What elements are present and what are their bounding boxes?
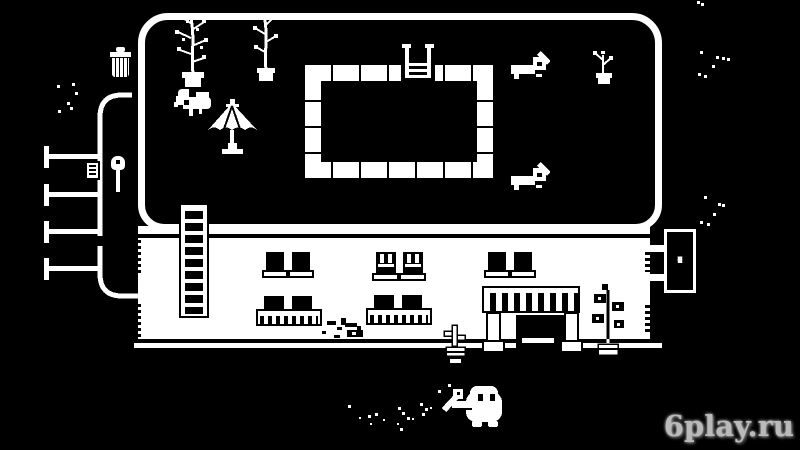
ladder-rungs (185, 207, 203, 314)
potted-sapling (588, 282, 632, 358)
window-flower-box (366, 308, 432, 325)
dust-particle (368, 415, 371, 418)
window-flower-box (256, 309, 322, 326)
sign-bracket (646, 245, 666, 252)
noise-speck (704, 196, 707, 199)
potted-cactus (438, 322, 470, 366)
door-step (522, 338, 554, 343)
dust-particle (425, 408, 428, 411)
noise-speck (712, 65, 715, 68)
dust-particle (370, 423, 372, 425)
parking-space-line (44, 221, 102, 243)
window-sill (288, 270, 314, 278)
wall-edge-texture (645, 252, 650, 272)
wall-edge-texture (645, 305, 650, 335)
potted-plant-tall (246, 14, 286, 82)
roof-access-ladder (179, 203, 209, 318)
window-plain (402, 295, 422, 308)
pillar-base (482, 340, 505, 353)
pool-tiles (305, 65, 493, 81)
noise-speck (75, 92, 78, 95)
swimming-pool (305, 65, 493, 178)
dust-particle (383, 419, 385, 421)
watermark: 6play.ru (664, 409, 794, 443)
noise-speck (700, 221, 703, 224)
parking-space-line (44, 184, 102, 206)
window-shuttered (376, 252, 396, 274)
patio-umbrella (205, 99, 261, 157)
noise-speck (713, 213, 716, 216)
noise-speck (718, 203, 721, 206)
potted-plant-large (166, 10, 218, 90)
noise-speck (697, 1, 700, 4)
window-shuttered (403, 252, 423, 274)
hotel-sign-letter: L (677, 256, 682, 267)
window-plain (488, 252, 506, 271)
window-plain (292, 252, 310, 271)
noise-speck (722, 57, 725, 60)
pool-lounge-chair (510, 50, 550, 84)
dust-particle (400, 428, 403, 431)
window-sill (399, 273, 426, 281)
sign-bracket (646, 274, 666, 281)
noise-speck (57, 85, 60, 88)
dust-particle (402, 412, 405, 415)
entrance-pillar (564, 312, 579, 342)
game-viewport[interactable]: H O T E L 6play.ru (0, 0, 800, 450)
noise-speck (716, 56, 719, 59)
window-plain (264, 296, 284, 309)
hotel-sign: H O T E L (664, 229, 696, 293)
dust-particle (398, 407, 401, 410)
dust-particle (420, 403, 423, 406)
pool-tiles (305, 162, 493, 178)
window-sill (372, 273, 399, 281)
window-plain (514, 252, 532, 271)
pillar-base (560, 340, 583, 353)
noise-speck (67, 102, 70, 105)
noise-speck (722, 204, 725, 207)
eave-line (138, 234, 650, 238)
noise-speck (70, 107, 73, 110)
noise-speck (701, 3, 704, 6)
dust-particle (375, 413, 378, 416)
dust-particle (397, 423, 399, 425)
pool-lounge-chair (510, 161, 550, 195)
dust-particle (359, 417, 361, 419)
window-plain (292, 296, 312, 309)
noise-speck (700, 51, 703, 54)
window-sill (510, 270, 536, 278)
noise-speck (58, 110, 61, 113)
potted-sprout (590, 48, 616, 86)
dust-particle (412, 418, 414, 420)
parking-space-line (44, 258, 102, 280)
window-sill (262, 270, 288, 278)
window-plain (374, 295, 394, 308)
dust-particle (422, 413, 425, 416)
dust-particle (430, 407, 432, 409)
dust-particle (407, 417, 410, 420)
window-plain (266, 252, 284, 271)
entrance-pillar (486, 312, 501, 342)
entrance-awning (482, 286, 580, 313)
parking-ticket-machine (85, 161, 100, 180)
noise-speck (698, 73, 701, 76)
pool-water (321, 81, 477, 162)
noise-speck (727, 58, 730, 61)
wall-edge-texture (136, 304, 141, 338)
noise-speck (72, 83, 75, 86)
noise-speck (707, 223, 710, 226)
noise-speck (704, 75, 707, 78)
awning-stripes (484, 293, 578, 311)
dust-particle (348, 405, 351, 408)
trash-can (108, 47, 132, 78)
player-character (436, 382, 510, 428)
window-sill (484, 270, 510, 278)
